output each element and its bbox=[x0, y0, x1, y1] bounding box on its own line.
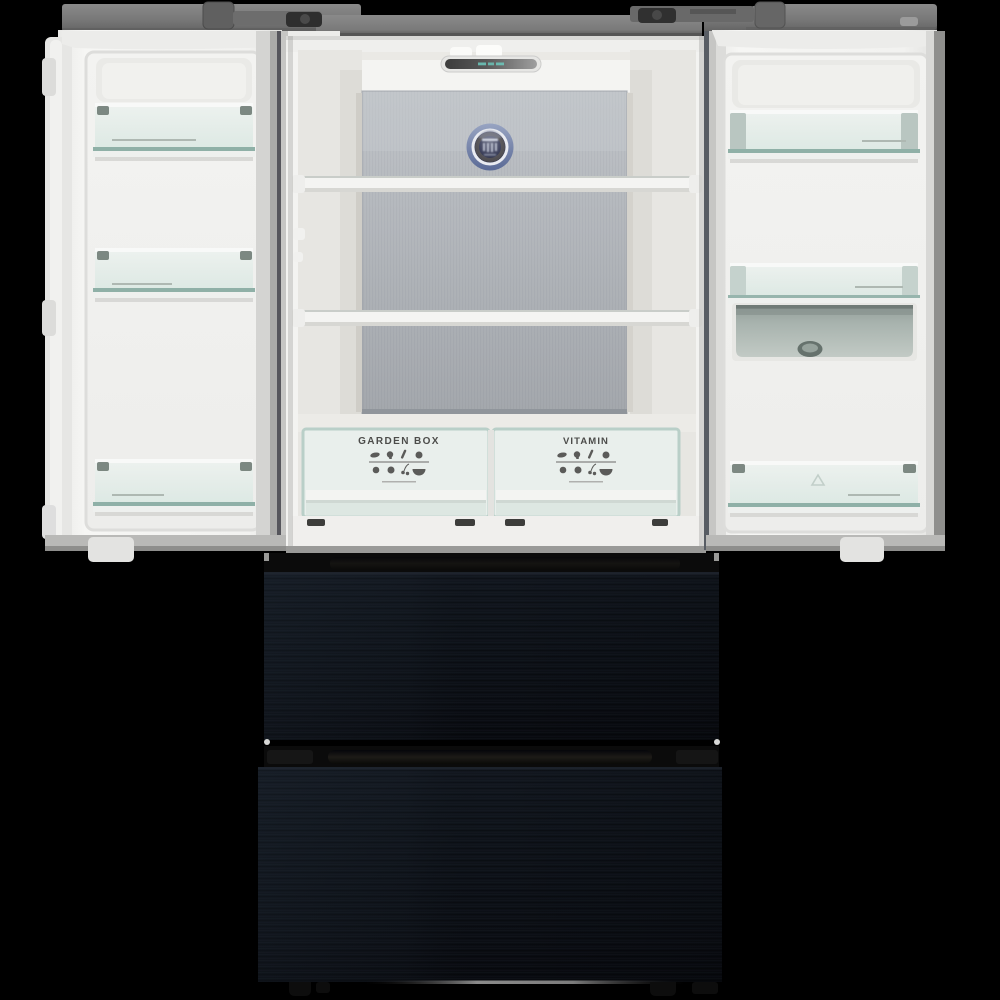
svg-text:GARDEN BOX: GARDEN BOX bbox=[358, 436, 440, 447]
svg-text:VITAMIN: VITAMIN bbox=[563, 436, 609, 447]
